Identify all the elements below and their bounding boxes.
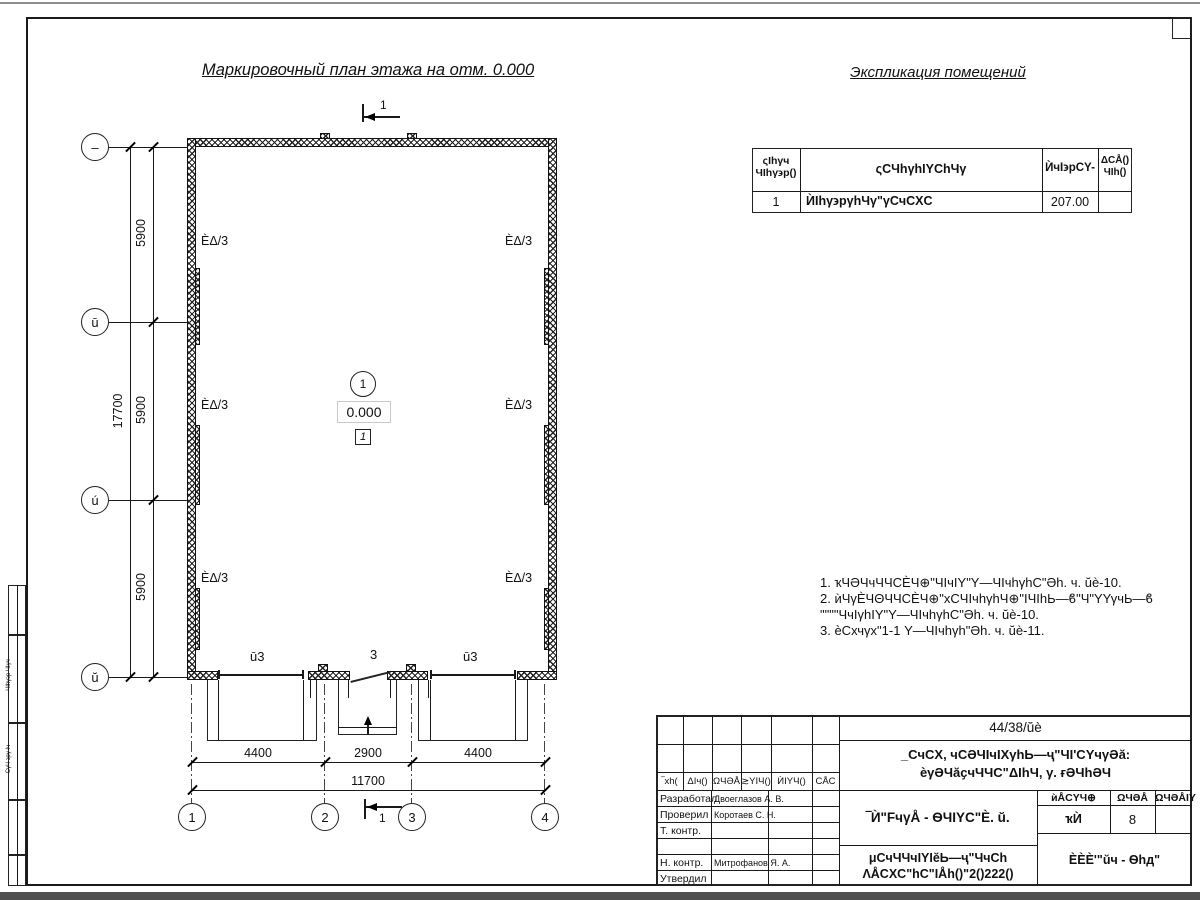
tb-divider	[656, 838, 839, 839]
tb-role: Н. контр.	[660, 857, 703, 869]
wall-bottom-seg	[387, 671, 428, 680]
dim-line-v-total	[130, 147, 131, 677]
dim-value-4400: 4400	[218, 746, 298, 760]
note-line: 3. ѐϹхчγх"1-1 Υ—ЧIчhγh"Әh. ч. ŭè-11.	[820, 623, 1045, 638]
axis-line-b	[109, 500, 187, 501]
table-cell-number: 1	[752, 195, 800, 209]
level-mark-box: 0.000	[337, 401, 391, 423]
tb-divider	[839, 845, 1037, 846]
frame-top	[26, 17, 1192, 19]
tb-divider	[656, 870, 839, 871]
tb-project-line: ѐγӘЧăҫчЧЧϹ"ΔIhЧ, γ. ғӘЧhӘЧ	[839, 765, 1192, 780]
table-header-note: ЧIh()	[1098, 167, 1132, 178]
note-line: """"ЧчIγhIΥ"Υ—ЧIчhγhϹ"Әh. ч. ŭè-10.	[820, 607, 1039, 622]
mark-label: ÈΔ/3	[505, 398, 532, 412]
dim-value-17700: 17700	[111, 376, 125, 446]
corner-format-box	[1172, 17, 1192, 39]
tb-header-podp: ЍIΥЧ()	[771, 776, 812, 787]
axis-label: ú	[91, 493, 98, 508]
opening-line	[430, 674, 515, 676]
dim-line-h-total	[192, 790, 545, 791]
section-mark-arrow	[365, 113, 375, 121]
axis-line-a	[109, 677, 187, 678]
apron-right	[418, 680, 528, 741]
ramp-arrow-head	[364, 716, 372, 725]
opening-tick	[218, 670, 220, 679]
tb-name: Коротаев С. Н.	[714, 810, 776, 820]
pier	[318, 664, 328, 672]
table-cell-name: ЍIhγ϶рγhЧγ"γϹчϹΧϹ	[806, 194, 933, 208]
room-number-bubble: 1	[350, 371, 376, 397]
explication-title: Экспликация помещений	[788, 64, 1088, 81]
section-mark-arrow	[367, 803, 377, 811]
axis-bubble-3: 3	[398, 803, 426, 831]
tb-divider	[656, 806, 839, 807]
axis-label: 3	[408, 810, 415, 825]
opening-line	[218, 674, 303, 676]
tb-divider	[656, 854, 839, 855]
tb-sheet-title: ‾Ѝ"FчγÅ - ѲЧIΥϹ"È. ŭ.	[839, 810, 1037, 825]
zone-number: 1	[360, 431, 366, 443]
mark-label: ÈΔ/3	[201, 234, 228, 248]
axis-label: ŭ	[91, 670, 98, 685]
bottom-taskbar-edge	[0, 892, 1200, 900]
note-line: 1. ҡЧӘЧчЧЧϹЀЧ⊕"ЧIчIΥ"Υ—ЧIчhγhϹ"Әh. ч. ŭè…	[820, 575, 1122, 591]
tb-divider	[839, 740, 1192, 741]
tb-divider	[656, 744, 839, 745]
section-mark-bar	[364, 799, 366, 819]
axis-line-3	[411, 684, 412, 803]
axis-label: ū	[91, 315, 98, 330]
dim-value-4400: 4400	[438, 746, 518, 760]
jamb-line	[303, 680, 304, 741]
opening-tick	[430, 670, 432, 679]
section-mark-bar	[362, 104, 364, 122]
dim-value-5900: 5900	[134, 198, 148, 268]
section-mark-number: 1	[379, 811, 386, 825]
margin-stamp-text: ϹγЧ ϶рγ Iч	[6, 724, 12, 794]
opening-tick	[514, 670, 516, 679]
axis-bubble-b: ú	[81, 486, 109, 514]
tb-role: Проверил	[660, 809, 708, 821]
tb-stage-value: ҡЍ	[1037, 812, 1110, 826]
plan-title: Маркировочный план этажа на отм. 0.000	[168, 61, 568, 80]
jamb-line	[430, 680, 431, 741]
axis-bubble-v: ū	[81, 308, 109, 336]
tb-divider	[656, 822, 839, 823]
tb-divider	[1037, 805, 1192, 806]
axis-label: 1	[188, 810, 195, 825]
dim-line-v-segments	[153, 147, 154, 677]
tb-role: Утвердил	[660, 873, 707, 885]
dim-value-11700: 11700	[328, 774, 408, 788]
gate-label: ū3	[250, 649, 264, 664]
section-mark-number: 1	[380, 98, 387, 112]
tb-firm: ÈÈÈ'"ŭч - Ѳhд"	[1037, 853, 1192, 867]
mark-label: ÈΔ/3	[201, 571, 228, 585]
tb-header-izm: ‾хh(	[656, 776, 683, 787]
pilaster	[544, 425, 549, 505]
gate-label: ū3	[463, 649, 477, 664]
wall-bottom-seg	[517, 671, 557, 680]
pilaster	[195, 425, 200, 505]
axis-label: 4	[541, 810, 548, 825]
dim-value-5900: 5900	[134, 375, 148, 445]
table-header-divider	[752, 191, 1132, 192]
pilaster	[320, 133, 330, 139]
tb-divider	[1037, 833, 1192, 834]
table-header-note: ΔϹÅ()	[1098, 155, 1132, 166]
tb-name: Митрофанов Я. А.	[714, 858, 790, 868]
tb-divider	[656, 772, 839, 773]
tb-header-dok: ≳YIЧ()	[741, 776, 771, 787]
pilaster	[407, 133, 417, 139]
wall-right	[548, 138, 557, 680]
pilaster	[544, 588, 549, 650]
jamb-line	[218, 680, 219, 741]
margin-stamp-divider	[17, 585, 18, 886]
pilaster	[544, 268, 549, 345]
table-header-number: ЧIhγ϶р()	[752, 167, 800, 179]
tb-name: Двоеглазов А. В.	[714, 794, 784, 804]
wall-bottom-seg	[308, 671, 350, 680]
table-col-divider	[800, 148, 801, 213]
tb-sheet-value: 8	[1110, 812, 1155, 827]
dim-value-2900: 2900	[328, 746, 408, 760]
pier	[406, 664, 416, 672]
table-header-area: ЍчI϶рϹΥ-	[1042, 162, 1098, 174]
room-number: 1	[360, 377, 367, 391]
jamb-stub	[310, 680, 311, 698]
jamb-stub	[390, 680, 391, 698]
level-value: 0.000	[346, 404, 381, 420]
pilaster	[195, 268, 200, 345]
tb-header-data: ϹÅϹ	[812, 776, 839, 787]
dim-value-5900: 5900	[134, 552, 148, 622]
axis-line-4	[544, 684, 545, 803]
axis-line-g	[109, 147, 187, 148]
note-line: 2. ѝЧγЀЧΘЧЧϹЀЧ⊕"хϹЧIчhγhЧ⊕"IЧIhЬ—ϐ"Ч"ΥΥγ…	[820, 591, 1153, 607]
table-header-name: ςϹЧhγhIΥϹhЧγ	[800, 162, 1042, 176]
dim-line-h-segments	[192, 762, 545, 763]
axis-bubble-g: –	[81, 133, 109, 161]
tb-org-line: ΛÅϹΧϹ"hϹ"IÅh()"2()222()	[839, 867, 1037, 881]
axis-bubble-a: ŭ	[81, 663, 109, 691]
jamb-stub	[348, 680, 349, 698]
axis-bubble-4: 4	[531, 803, 559, 831]
tb-role: Т. контр.	[660, 825, 701, 837]
axis-bubble-1: 1	[178, 803, 206, 831]
axis-bubble-2: 2	[311, 803, 339, 831]
tb-header-list: ΩЧӘÅ	[712, 776, 741, 787]
table-cell-area: 207.00	[1042, 195, 1098, 209]
mark-label: ÈΔ/3	[201, 398, 228, 412]
tb-role: Разработал	[660, 793, 717, 805]
opening-tick	[302, 670, 304, 679]
jamb-stub	[428, 680, 429, 698]
axis-label: 2	[321, 810, 328, 825]
tb-stage-label: ѝÅϹΥЧ⊕	[1037, 792, 1110, 804]
tb-doc-number: 44/38/ŭè	[839, 720, 1192, 735]
margin-stamp-text: ЧΙhγ϶р ЧΙγч	[6, 640, 12, 710]
mark-label: ÈΔ/3	[505, 234, 532, 248]
wall-bottom-seg	[187, 671, 218, 680]
top-edge-line	[0, 2, 1200, 4]
tb-divider	[812, 715, 813, 886]
jamb-line	[515, 680, 516, 741]
drawing-sheet: ЧΙhγ϶р ЧΙγч ϹγЧ ϶рγ Iч Маркировочный пла…	[0, 0, 1200, 900]
pilaster	[195, 588, 200, 650]
tb-project-line: _ϹчϹΧ, чϹӘЧIчIΧγhЬ—ҷ"ЧI'ϹΥчγӘă:	[839, 747, 1192, 762]
frame-left	[26, 17, 28, 886]
wall-top	[187, 138, 557, 147]
zone-box: 1	[355, 429, 371, 445]
table-header-number: ςIhγч	[752, 155, 800, 167]
gate-label: 3	[370, 647, 377, 662]
tb-sheet-label: ΩЧӘÅ	[1110, 792, 1155, 804]
tb-header-koluch: ΔIч()	[683, 776, 712, 787]
axis-line-v	[109, 322, 187, 323]
mark-label: ÈΔ/3	[505, 571, 532, 585]
tb-sheets-label: ΩЧӘÅIΥ	[1155, 792, 1192, 804]
apron-left	[207, 680, 317, 741]
axis-label: –	[91, 140, 98, 155]
axis-line-2	[324, 684, 325, 803]
axis-line-1	[191, 684, 192, 803]
tb-org-line: μϹчЧЧчIΥIĕЬ—ҷ"ЧчϹh	[839, 851, 1037, 865]
